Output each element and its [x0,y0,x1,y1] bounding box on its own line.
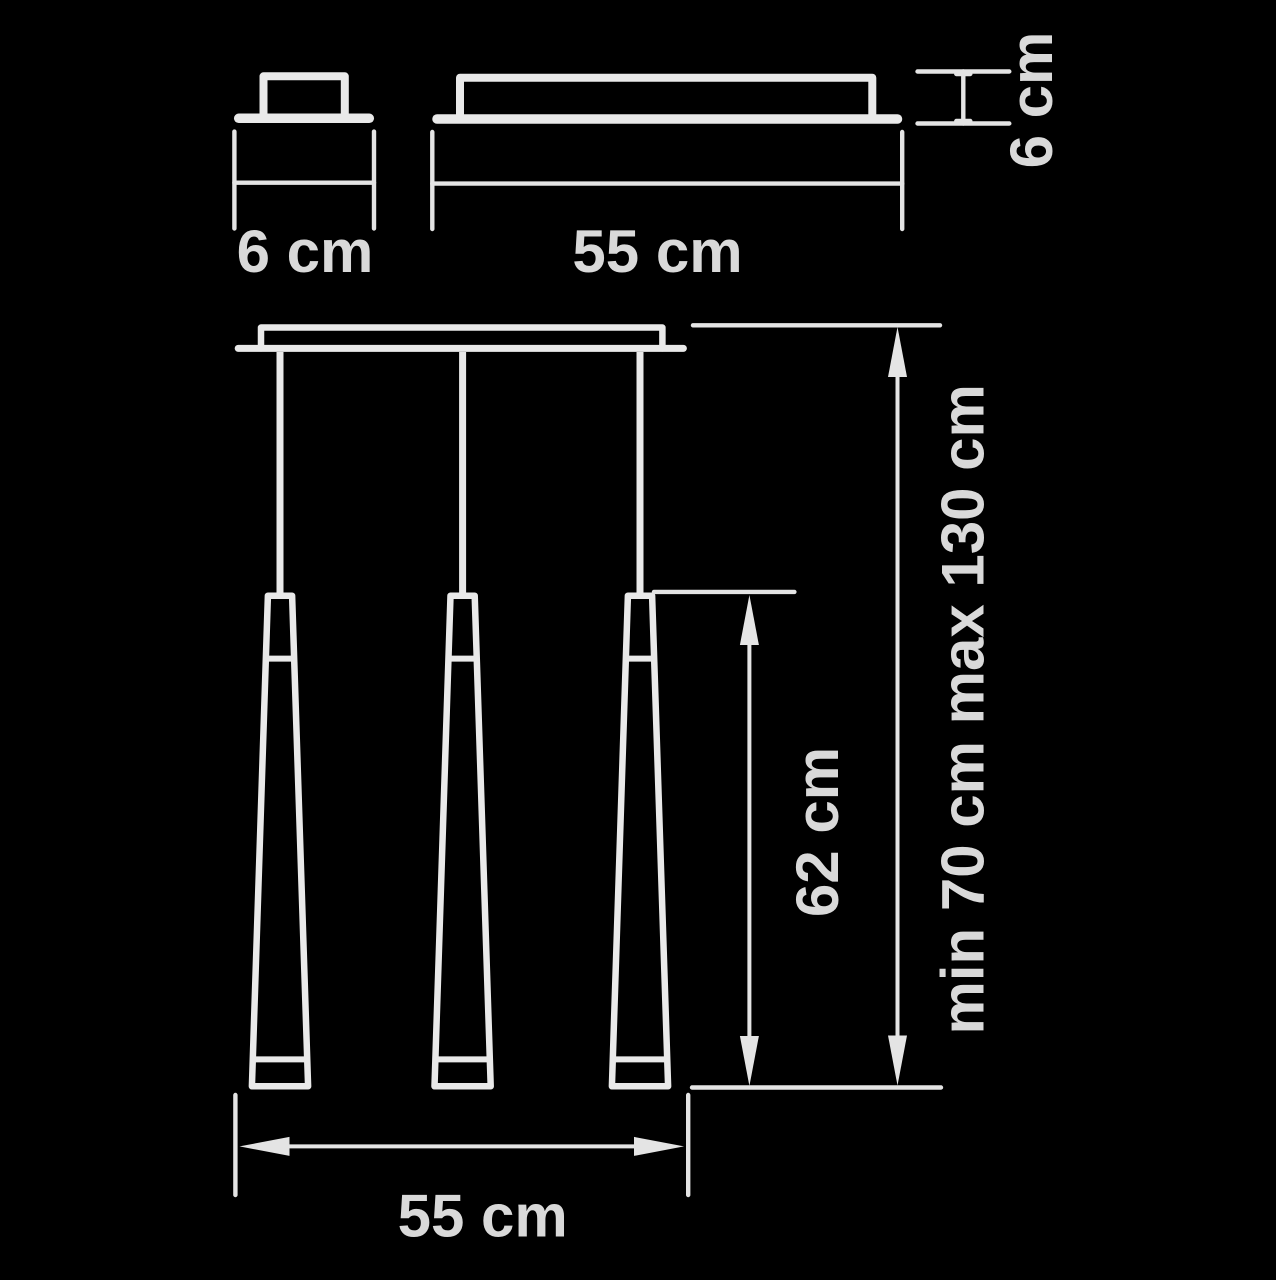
svg-text:6 cm: 6 cm [237,218,374,285]
svg-text:62 cm: 62 cm [784,747,851,917]
svg-text:55 cm: 55 cm [572,218,742,285]
svg-text:6 cm: 6 cm [998,32,1065,169]
svg-text:55 cm: 55 cm [398,1183,568,1250]
svg-text:min 70 cm max 130 cm: min 70 cm max 130 cm [930,384,997,1034]
